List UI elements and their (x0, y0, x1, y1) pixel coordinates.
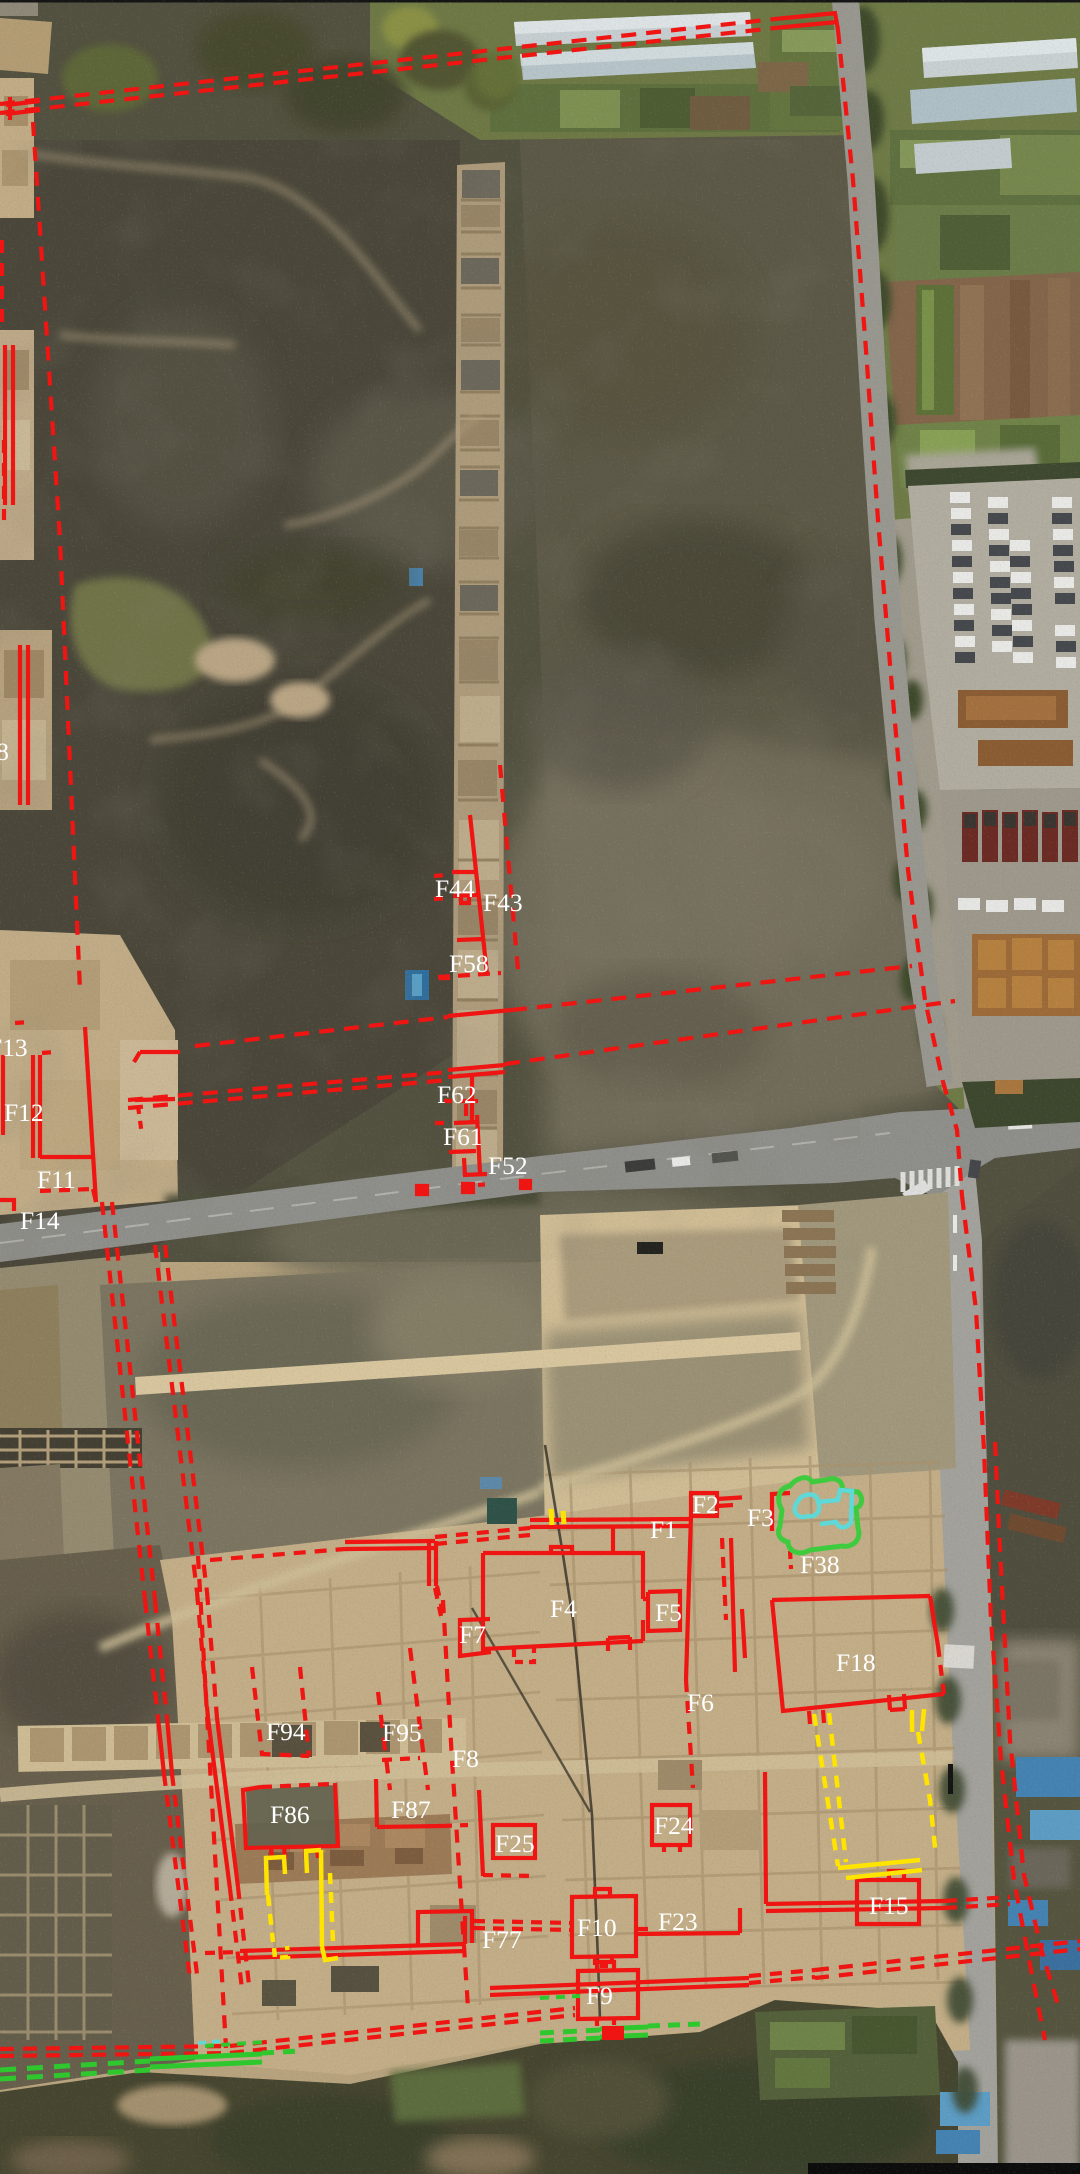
svg-text:F3: F3 (747, 1503, 774, 1532)
svg-text:F2: F2 (692, 1490, 719, 1519)
svg-text:F24: F24 (654, 1811, 694, 1840)
svg-text:F15: F15 (869, 1891, 909, 1920)
svg-text:F6: F6 (687, 1688, 714, 1717)
svg-text:F94: F94 (266, 1717, 306, 1746)
svg-text:F7: F7 (459, 1620, 486, 1649)
svg-text:F9: F9 (586, 1981, 613, 2010)
svg-text:F8: F8 (452, 1744, 479, 1773)
svg-text:F61: F61 (443, 1122, 483, 1151)
svg-text:F43: F43 (483, 888, 523, 917)
svg-text:F38: F38 (800, 1550, 840, 1579)
svg-text:F23: F23 (658, 1907, 698, 1936)
svg-text:F1: F1 (650, 1515, 677, 1544)
svg-text:F87: F87 (391, 1795, 431, 1824)
svg-text:F14: F14 (20, 1206, 60, 1235)
svg-text:F95: F95 (382, 1718, 422, 1747)
svg-text:F25: F25 (495, 1829, 535, 1858)
svg-text:F13: F13 (0, 1033, 28, 1062)
svg-text:F8: F8 (0, 737, 9, 766)
svg-text:F11: F11 (37, 1165, 76, 1194)
svg-text:F5: F5 (655, 1598, 682, 1627)
svg-text:F10: F10 (577, 1913, 617, 1942)
svg-text:F4: F4 (550, 1594, 577, 1623)
svg-text:F18: F18 (836, 1648, 876, 1677)
svg-text:F52: F52 (488, 1151, 528, 1180)
svg-text:F58: F58 (449, 949, 489, 978)
svg-text:F77: F77 (482, 1925, 522, 1954)
svg-text:F62: F62 (437, 1080, 477, 1109)
svg-text:F86: F86 (270, 1800, 310, 1829)
svg-text:F44: F44 (435, 874, 475, 903)
svg-text:F12: F12 (4, 1098, 44, 1127)
